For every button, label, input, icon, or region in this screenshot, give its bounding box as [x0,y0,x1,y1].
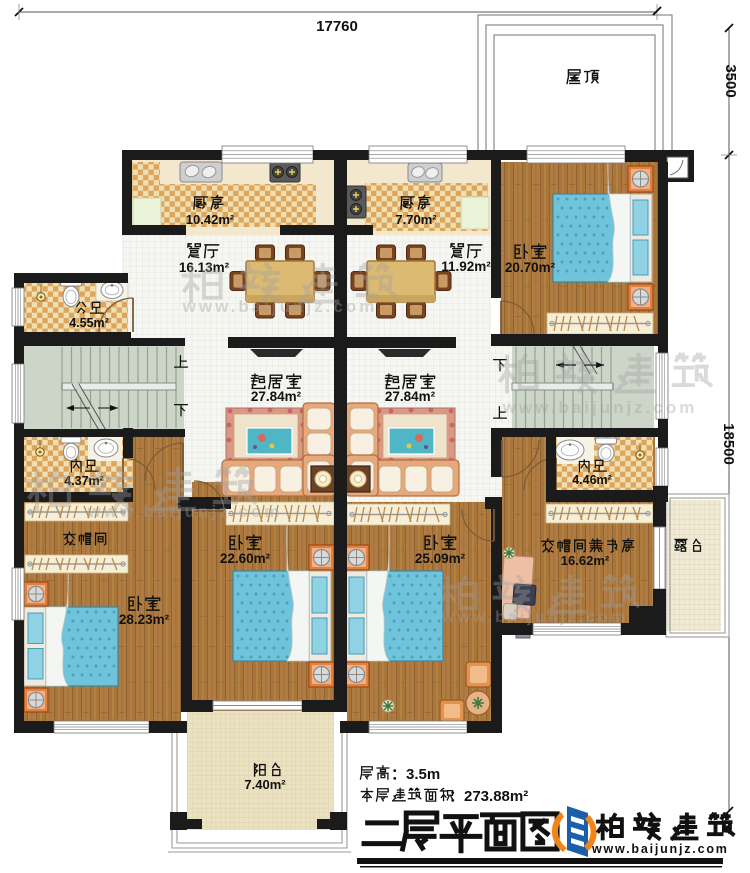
svg-text:22.60m²: 22.60m² [220,551,271,566]
svg-text:3500: 3500 [722,64,739,97]
svg-text:20.70m²: 20.70m² [505,260,556,275]
svg-text:4.46m²: 4.46m² [572,473,612,487]
svg-text:10.42m²: 10.42m² [186,212,235,227]
svg-text:：3.5m: ：3.5m [391,766,440,783]
svg-text:www.baijunjz.com: www.baijunjz.com [87,502,283,521]
svg-text:18500: 18500 [720,423,737,465]
svg-text:7.40m²: 7.40m² [244,777,286,792]
svg-text:27.84m²: 27.84m² [251,389,302,404]
svg-text:www.baijunjz.com: www.baijunjz.com [591,842,729,856]
svg-text:27.84m²: 27.84m² [385,389,436,404]
svg-text:16.62m²: 16.62m² [561,553,610,568]
svg-text:25.09m²: 25.09m² [415,551,466,566]
svg-text:www.baijunjz.com: www.baijunjz.com [441,609,628,626]
svg-text:www.baijunjz.com: www.baijunjz.com [182,297,378,316]
svg-text:17760: 17760 [316,18,358,35]
svg-text:28.23m²: 28.23m² [119,612,170,627]
svg-text:11.92m²: 11.92m² [441,259,491,274]
svg-text:www.baijunjz.com: www.baijunjz.com [502,398,698,417]
svg-text:：273.88m²: ：273.88m² [449,788,528,805]
svg-text:7.70m²: 7.70m² [395,212,437,227]
svg-text:4.55m²: 4.55m² [69,316,109,330]
